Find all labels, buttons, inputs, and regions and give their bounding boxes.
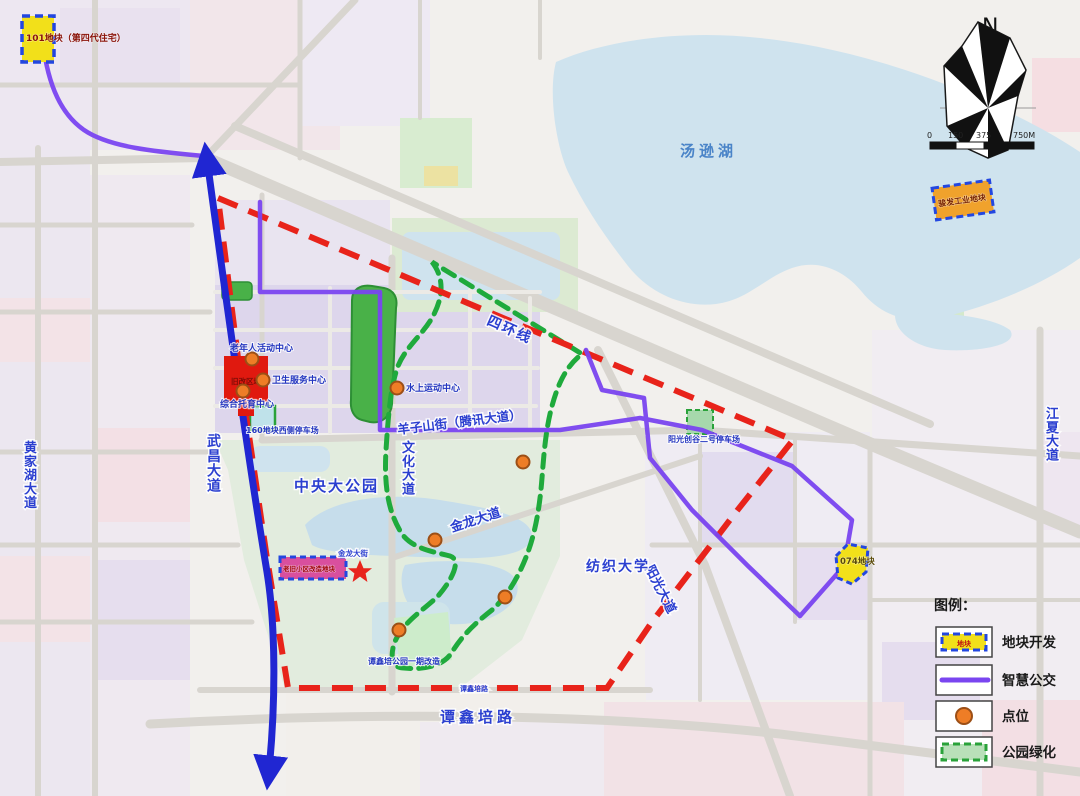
scale-tick-375: 375 [976,131,991,140]
poi-label-parking-sunshine: 阳光创谷二号停车场 [668,434,740,444]
planning-map: 101地块（第四代住宅） 骏发工业地块 074地块 老旧小区改造地块 旧改区域 … [0,0,1080,796]
place-label-tangxun-lake: 汤逊湖 [680,142,737,160]
plot-renewal-label: 老旧小区改造地块 [282,564,336,573]
poi-label-tanxinpei-park: 谭鑫培公园一期改造 [368,656,440,666]
poi-label-parking-160: 160地块西侧停车场 [246,425,319,435]
road-label-wenhua: 文化大道 [402,440,416,497]
legend-swatch-park-icon [942,744,986,760]
road-label-tanxinpei-minor: 谭鑫培路 [460,684,489,693]
scale-tick-150: 150 [948,131,963,140]
road-label-jinlong-street: 金龙大街 [337,548,368,558]
place-label-central-park: 中央大公园 [294,477,379,495]
poi-dot [237,385,250,398]
poi-label-water-sports: 水上运动中心 [406,382,460,394]
legend-swatch-plot-text: 地块 [957,639,972,648]
poi-dot [393,624,406,637]
scale-tick-0: 0 [927,131,932,140]
legend-label-park-greening: 公园绿化 [1002,744,1056,761]
legend-label-smart-bus: 智慧公交 [1002,672,1056,689]
legend-title: 图例： [934,597,976,614]
map-canvas: 101地块（第四代住宅） 骏发工业地块 074地块 老旧小区改造地块 旧改区域 … [0,0,1080,796]
plot-renewal: 老旧小区改造地块 [280,557,346,579]
road-label-tanxinpei: 谭鑫培路 [440,708,516,726]
poi-dot [429,534,442,547]
poi-dot [391,382,404,395]
legend-swatch-poi-dot [956,708,972,724]
legend-label-plot-development: 地块开发 [1002,634,1056,651]
scale-tick-750: 750M [1013,131,1035,140]
poi-dot [257,374,270,387]
place-label-textile-university: 纺织大学 [586,558,650,575]
road-label-jiangxia: 江夏大道 [1045,406,1060,463]
plot-101-label: 101地块（第四代住宅） [26,32,126,44]
poi-dot [499,591,512,604]
road-label-wuchang: 武昌大道 [207,433,221,495]
legend-label-poi: 点位 [1002,708,1030,725]
plot-074-label: 074地块 [840,556,875,567]
poi-label-health-center: 卫生服务中心 [272,374,326,386]
poi-dot [517,456,530,469]
poi-dot [246,353,259,366]
poi-label-childcare-center: 综合托育中心 [220,398,274,410]
poi-label-senior-center: 老年人活动中心 [229,342,293,354]
road-label-huangjiahu: 黄家湖大道 [24,440,38,511]
